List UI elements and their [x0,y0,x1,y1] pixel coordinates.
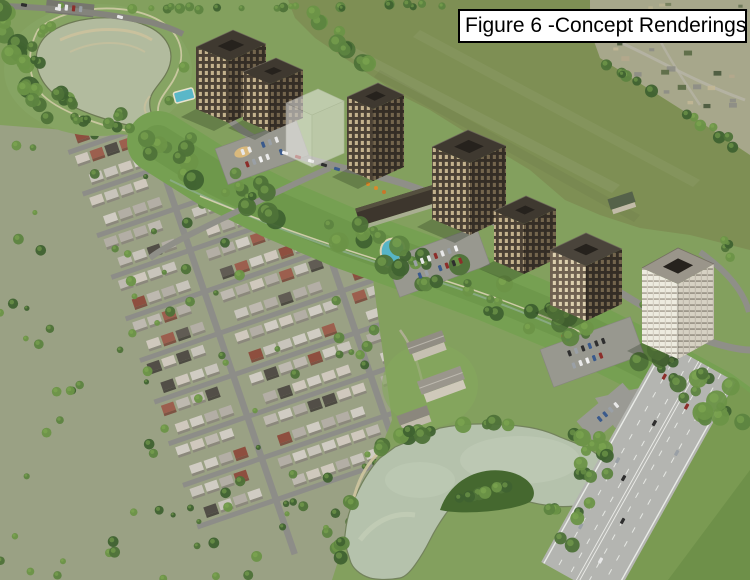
ghost-future-building [286,89,344,167]
patio-umbrella [382,190,386,194]
concept-rendering-figure: Figure 6 -Concept Renderings [0,0,750,580]
aerial-rendering [0,0,750,580]
figure-label: Figure 6 -Concept Renderings [458,9,747,43]
patio-umbrella [374,186,378,190]
